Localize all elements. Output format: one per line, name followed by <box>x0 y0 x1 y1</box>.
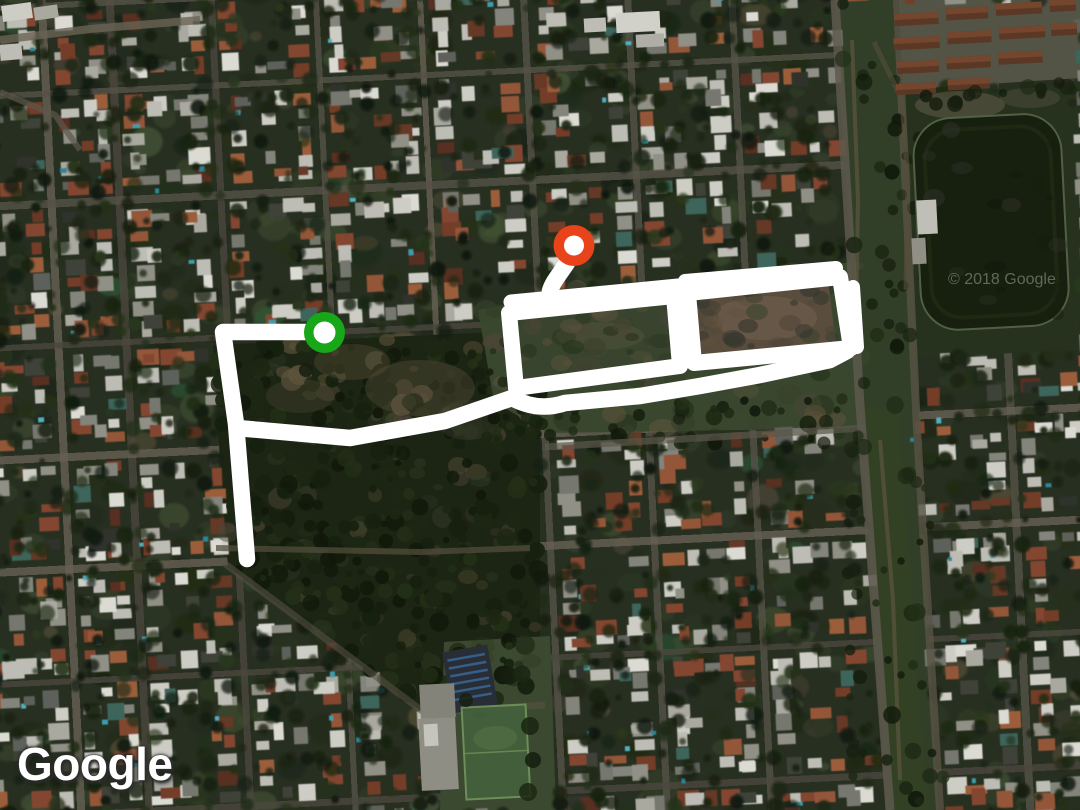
svg-text:© 2018 Google: © 2018 Google <box>948 271 1056 288</box>
